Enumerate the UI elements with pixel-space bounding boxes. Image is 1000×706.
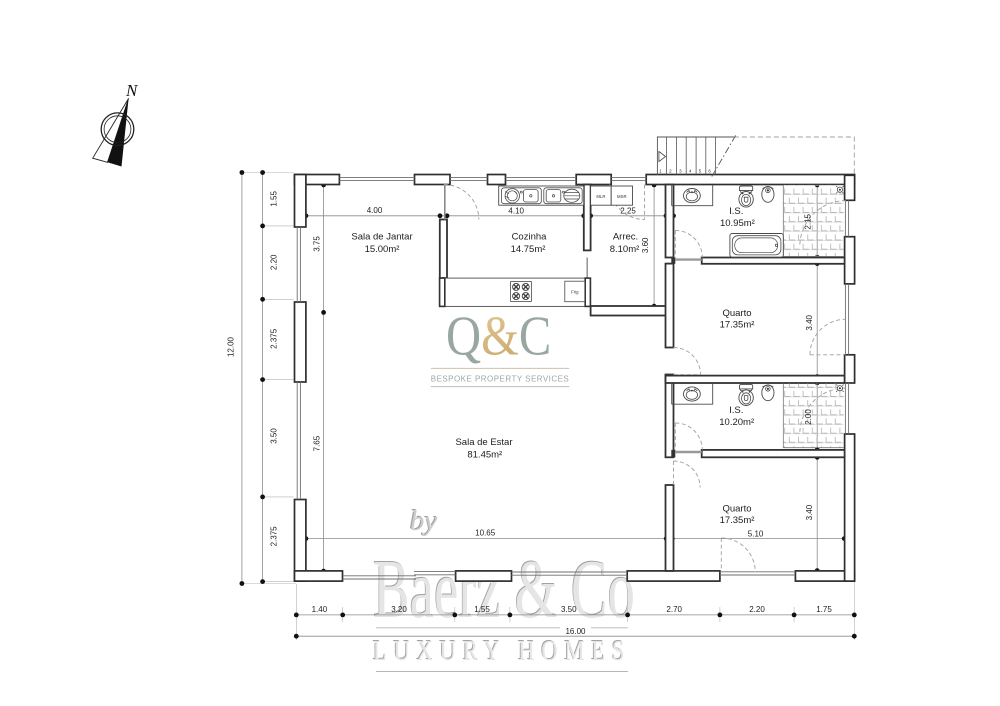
svg-text:4.00: 4.00	[367, 206, 383, 215]
svg-text:17.35m²: 17.35m²	[720, 320, 755, 331]
svg-text:BESPOKE PROPERTY SERVICES: BESPOKE PROPERTY SERVICES	[431, 375, 569, 384]
svg-text:MSR: MSR	[617, 194, 627, 199]
svg-text:3.50: 3.50	[561, 605, 577, 614]
svg-text:Baerz & Co: Baerz & Co	[373, 544, 635, 636]
svg-text:Quarto: Quarto	[722, 308, 751, 319]
svg-text:by: by	[410, 505, 438, 537]
svg-text:4.10: 4.10	[508, 207, 524, 216]
svg-text:2.15: 2.15	[803, 213, 812, 229]
svg-text:3.50: 3.50	[269, 428, 278, 444]
svg-text:3.75: 3.75	[312, 236, 321, 252]
svg-text:1.40: 1.40	[312, 605, 328, 614]
svg-text:Q&C: Q&C	[446, 305, 551, 367]
svg-text:Quarto: Quarto	[722, 504, 751, 515]
svg-text:1.55: 1.55	[269, 191, 278, 207]
svg-text:5.10: 5.10	[748, 529, 764, 538]
svg-text:2.00: 2.00	[804, 409, 813, 425]
svg-text:1.75: 1.75	[816, 605, 832, 614]
svg-text:14.75m²: 14.75m²	[511, 244, 546, 255]
svg-text:2.25: 2.25	[620, 207, 636, 216]
svg-text:I.S.: I.S.	[729, 405, 743, 416]
svg-text:2.70: 2.70	[666, 605, 682, 614]
svg-text:17.35m²: 17.35m²	[720, 515, 755, 526]
svg-text:2.375: 2.375	[269, 526, 278, 547]
svg-text:Frig: Frig	[571, 290, 579, 295]
svg-text:3.40: 3.40	[805, 504, 814, 520]
svg-text:10.65: 10.65	[475, 529, 496, 538]
svg-text:Sala de Jantar: Sala de Jantar	[351, 232, 412, 243]
svg-text:2.375: 2.375	[269, 328, 278, 349]
svg-text:I.S.: I.S.	[729, 206, 743, 217]
svg-text:Arrec.: Arrec.	[613, 232, 638, 243]
svg-text:12.00: 12.00	[227, 336, 236, 357]
svg-text:81.45m²: 81.45m²	[467, 450, 502, 461]
svg-text:8.10m²: 8.10m²	[610, 244, 640, 255]
svg-text:2.20: 2.20	[269, 254, 278, 270]
svg-text:Sala de Estar: Sala de Estar	[455, 437, 512, 448]
svg-text:2.20: 2.20	[749, 605, 765, 614]
svg-text:3.40: 3.40	[805, 314, 814, 330]
svg-text:3.60: 3.60	[641, 237, 650, 253]
svg-text:MLR: MLR	[596, 194, 605, 199]
svg-text:10.20m²: 10.20m²	[719, 417, 754, 428]
svg-text:7.65: 7.65	[313, 435, 322, 451]
svg-text:10.95m²: 10.95m²	[720, 218, 755, 229]
svg-text:N: N	[125, 81, 139, 100]
svg-text:LUXURY HOMES: LUXURY HOMES	[373, 634, 631, 666]
svg-text:16.00: 16.00	[565, 627, 586, 636]
svg-text:3.20: 3.20	[391, 605, 407, 614]
svg-text:1.55: 1.55	[474, 605, 490, 614]
svg-text:Cozinha: Cozinha	[512, 232, 548, 243]
svg-text:15.00m²: 15.00m²	[365, 244, 400, 255]
